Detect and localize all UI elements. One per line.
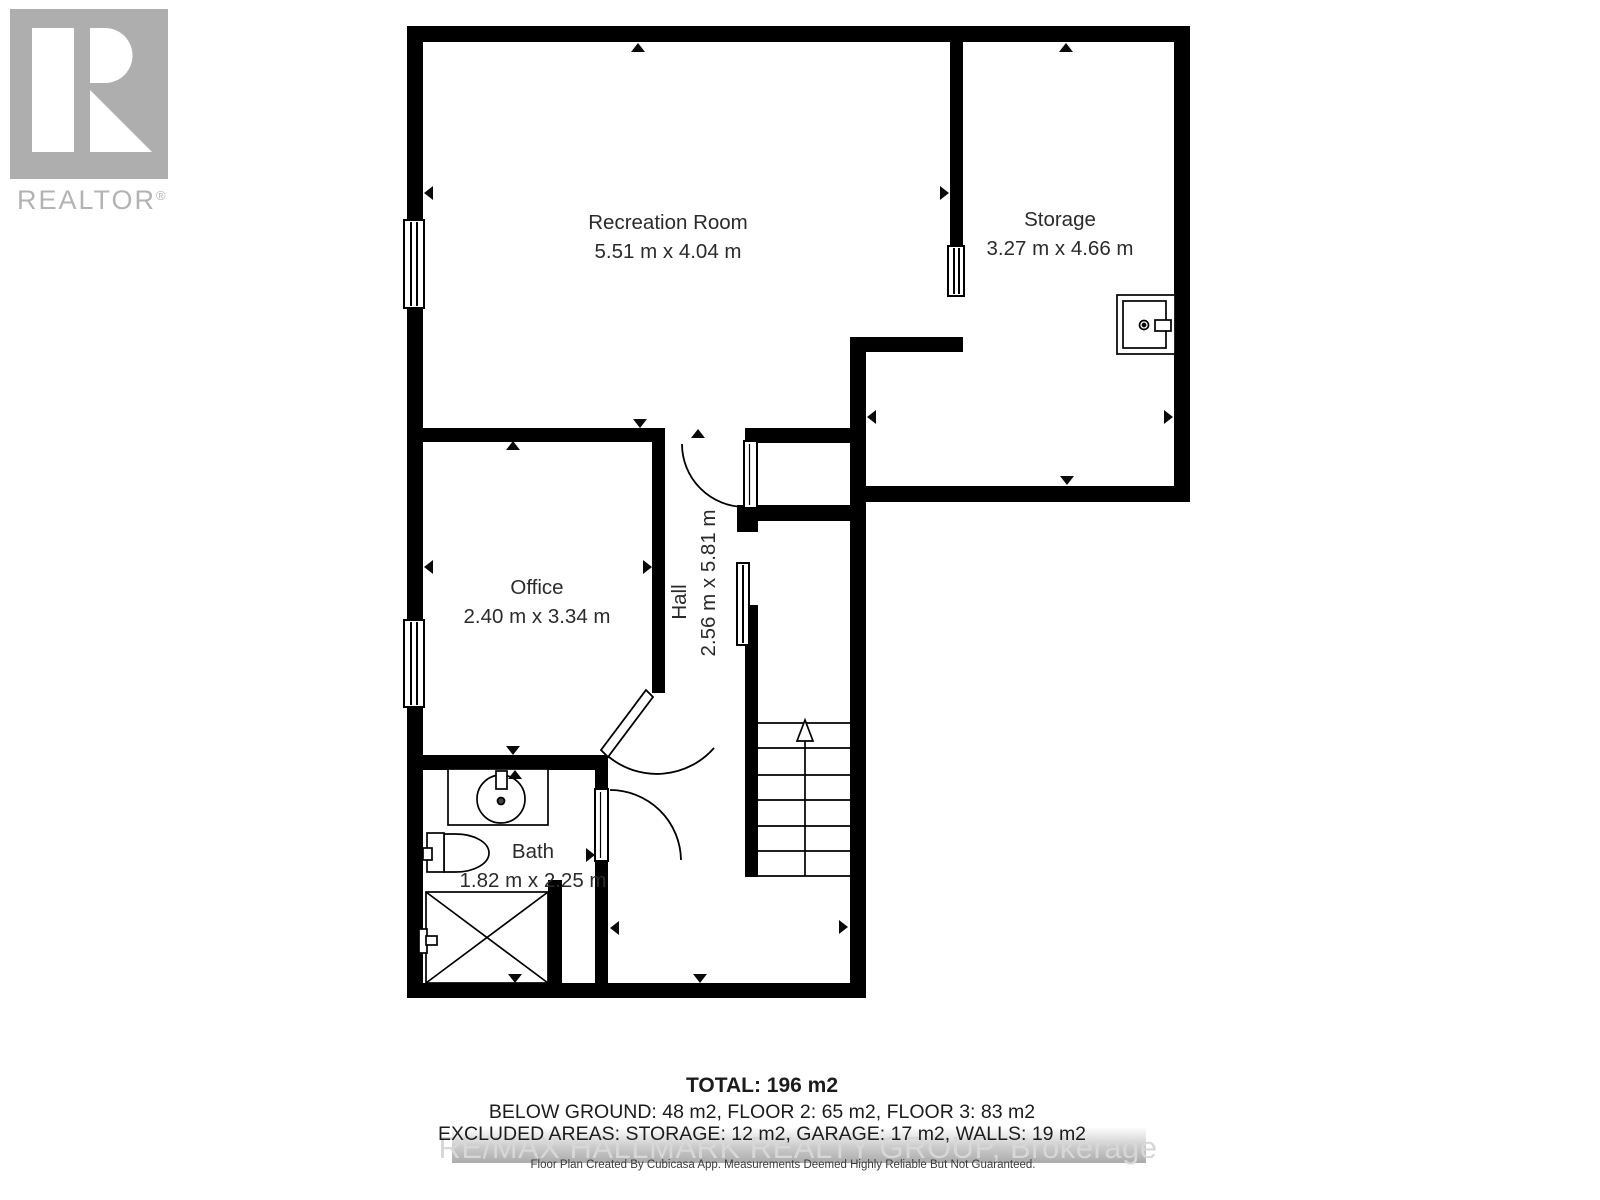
marker-office-left: [424, 560, 433, 574]
label-bath: Bath 1.82 m x 2.25 m: [460, 837, 607, 895]
room-dimensions: 2.40 m x 3.34 m: [464, 602, 611, 631]
wall-top: [407, 26, 1190, 42]
window-office: [404, 620, 424, 707]
logo-r-stem: [32, 28, 74, 152]
wall-office-bottom: [407, 755, 608, 770]
room-name: Bath: [460, 837, 607, 866]
label-storage: Storage 3.27 m x 4.66 m: [987, 205, 1134, 263]
wall-bottom: [407, 983, 866, 998]
stairs: [758, 720, 850, 876]
label-recreation-room: Recreation Room 5.51 m x 4.04 m: [588, 208, 748, 266]
door-office: [601, 690, 714, 774]
wall-storage-bottom: [853, 486, 1190, 502]
room-name: Office: [464, 573, 611, 602]
marker-storage-top: [1059, 43, 1073, 52]
marker-rec-right: [940, 186, 949, 200]
wall-office-top: [407, 428, 665, 442]
wall-left: [407, 26, 423, 998]
realtor-logo-icon: [8, 6, 188, 182]
room-dimensions: 1.82 m x 2.25 m: [460, 866, 607, 895]
room-dimensions: 3.27 m x 4.66 m: [987, 234, 1134, 263]
label-hall-name: Hall: [668, 584, 692, 619]
marker-rec-bottom: [633, 419, 647, 428]
marker-storage-left: [867, 410, 876, 424]
label-office: Office 2.40 m x 3.34 m: [464, 573, 611, 631]
door-hall-top: [682, 441, 757, 508]
window-storage-divider: [948, 246, 964, 296]
wall-shower-right: [548, 880, 562, 998]
wall-office-right: [652, 441, 665, 693]
marker-office-right: [643, 560, 652, 574]
excluded-areas-text: EXCLUDED AREAS: STORAGE: 12 m2, GARAGE: …: [0, 1123, 1524, 1146]
realtor-logo: REALTOR®: [8, 6, 188, 187]
room-name: Storage: [987, 205, 1134, 234]
wall-rec-storage-divider: [950, 42, 963, 248]
wall-storage-right: [1174, 26, 1190, 502]
marker-office-top: [506, 441, 520, 450]
marker-hall-top: [691, 429, 705, 438]
marker-storage-right: [1164, 410, 1173, 424]
floor-plan-drawing: [0, 0, 1600, 1200]
wall-bath-right-upper: [595, 770, 608, 790]
room-dimensions: 2.56 m x 5.81 m: [697, 510, 720, 657]
disclaimer-text: Floor Plan Created By Cubicasa App. Meas…: [0, 1159, 1566, 1171]
marker-rec-top: [631, 43, 645, 52]
total-area-text: TOTAL: 196 m2: [0, 1074, 1524, 1098]
sink-icon: [448, 769, 548, 825]
marker-hall-lower-left: [610, 921, 619, 935]
wall-rec-bottom-right: [745, 428, 853, 443]
floor-plan-page: REALTOR®: [0, 0, 1600, 1200]
door-bath: [595, 789, 681, 861]
shower-icon: [419, 892, 548, 983]
marker-storage-bottom: [1060, 476, 1074, 485]
wall-hall-stub: [737, 505, 758, 532]
realtor-wordmark: REALTOR®: [17, 185, 166, 216]
label-hall-dimensions: 2.56 m x 5.81 m: [697, 510, 721, 657]
wall-storage-step: [850, 337, 963, 352]
marker-rec-left: [424, 186, 433, 200]
marker-bottom-hall: [693, 974, 707, 983]
doors: [595, 441, 757, 861]
electrical-panel-icon: [1117, 295, 1175, 354]
registered-mark: ®: [156, 188, 166, 203]
marker-office-bottom: [506, 746, 520, 755]
room-dimensions: 5.51 m x 4.04 m: [588, 237, 748, 266]
floor-areas-text: BELOW GROUND: 48 m2, FLOOR 2: 65 m2, FLO…: [0, 1101, 1524, 1124]
window-recreation: [404, 220, 424, 308]
room-name: Hall: [668, 584, 691, 619]
room-name: Recreation Room: [588, 208, 748, 237]
marker-hall-lower-right: [839, 920, 848, 934]
